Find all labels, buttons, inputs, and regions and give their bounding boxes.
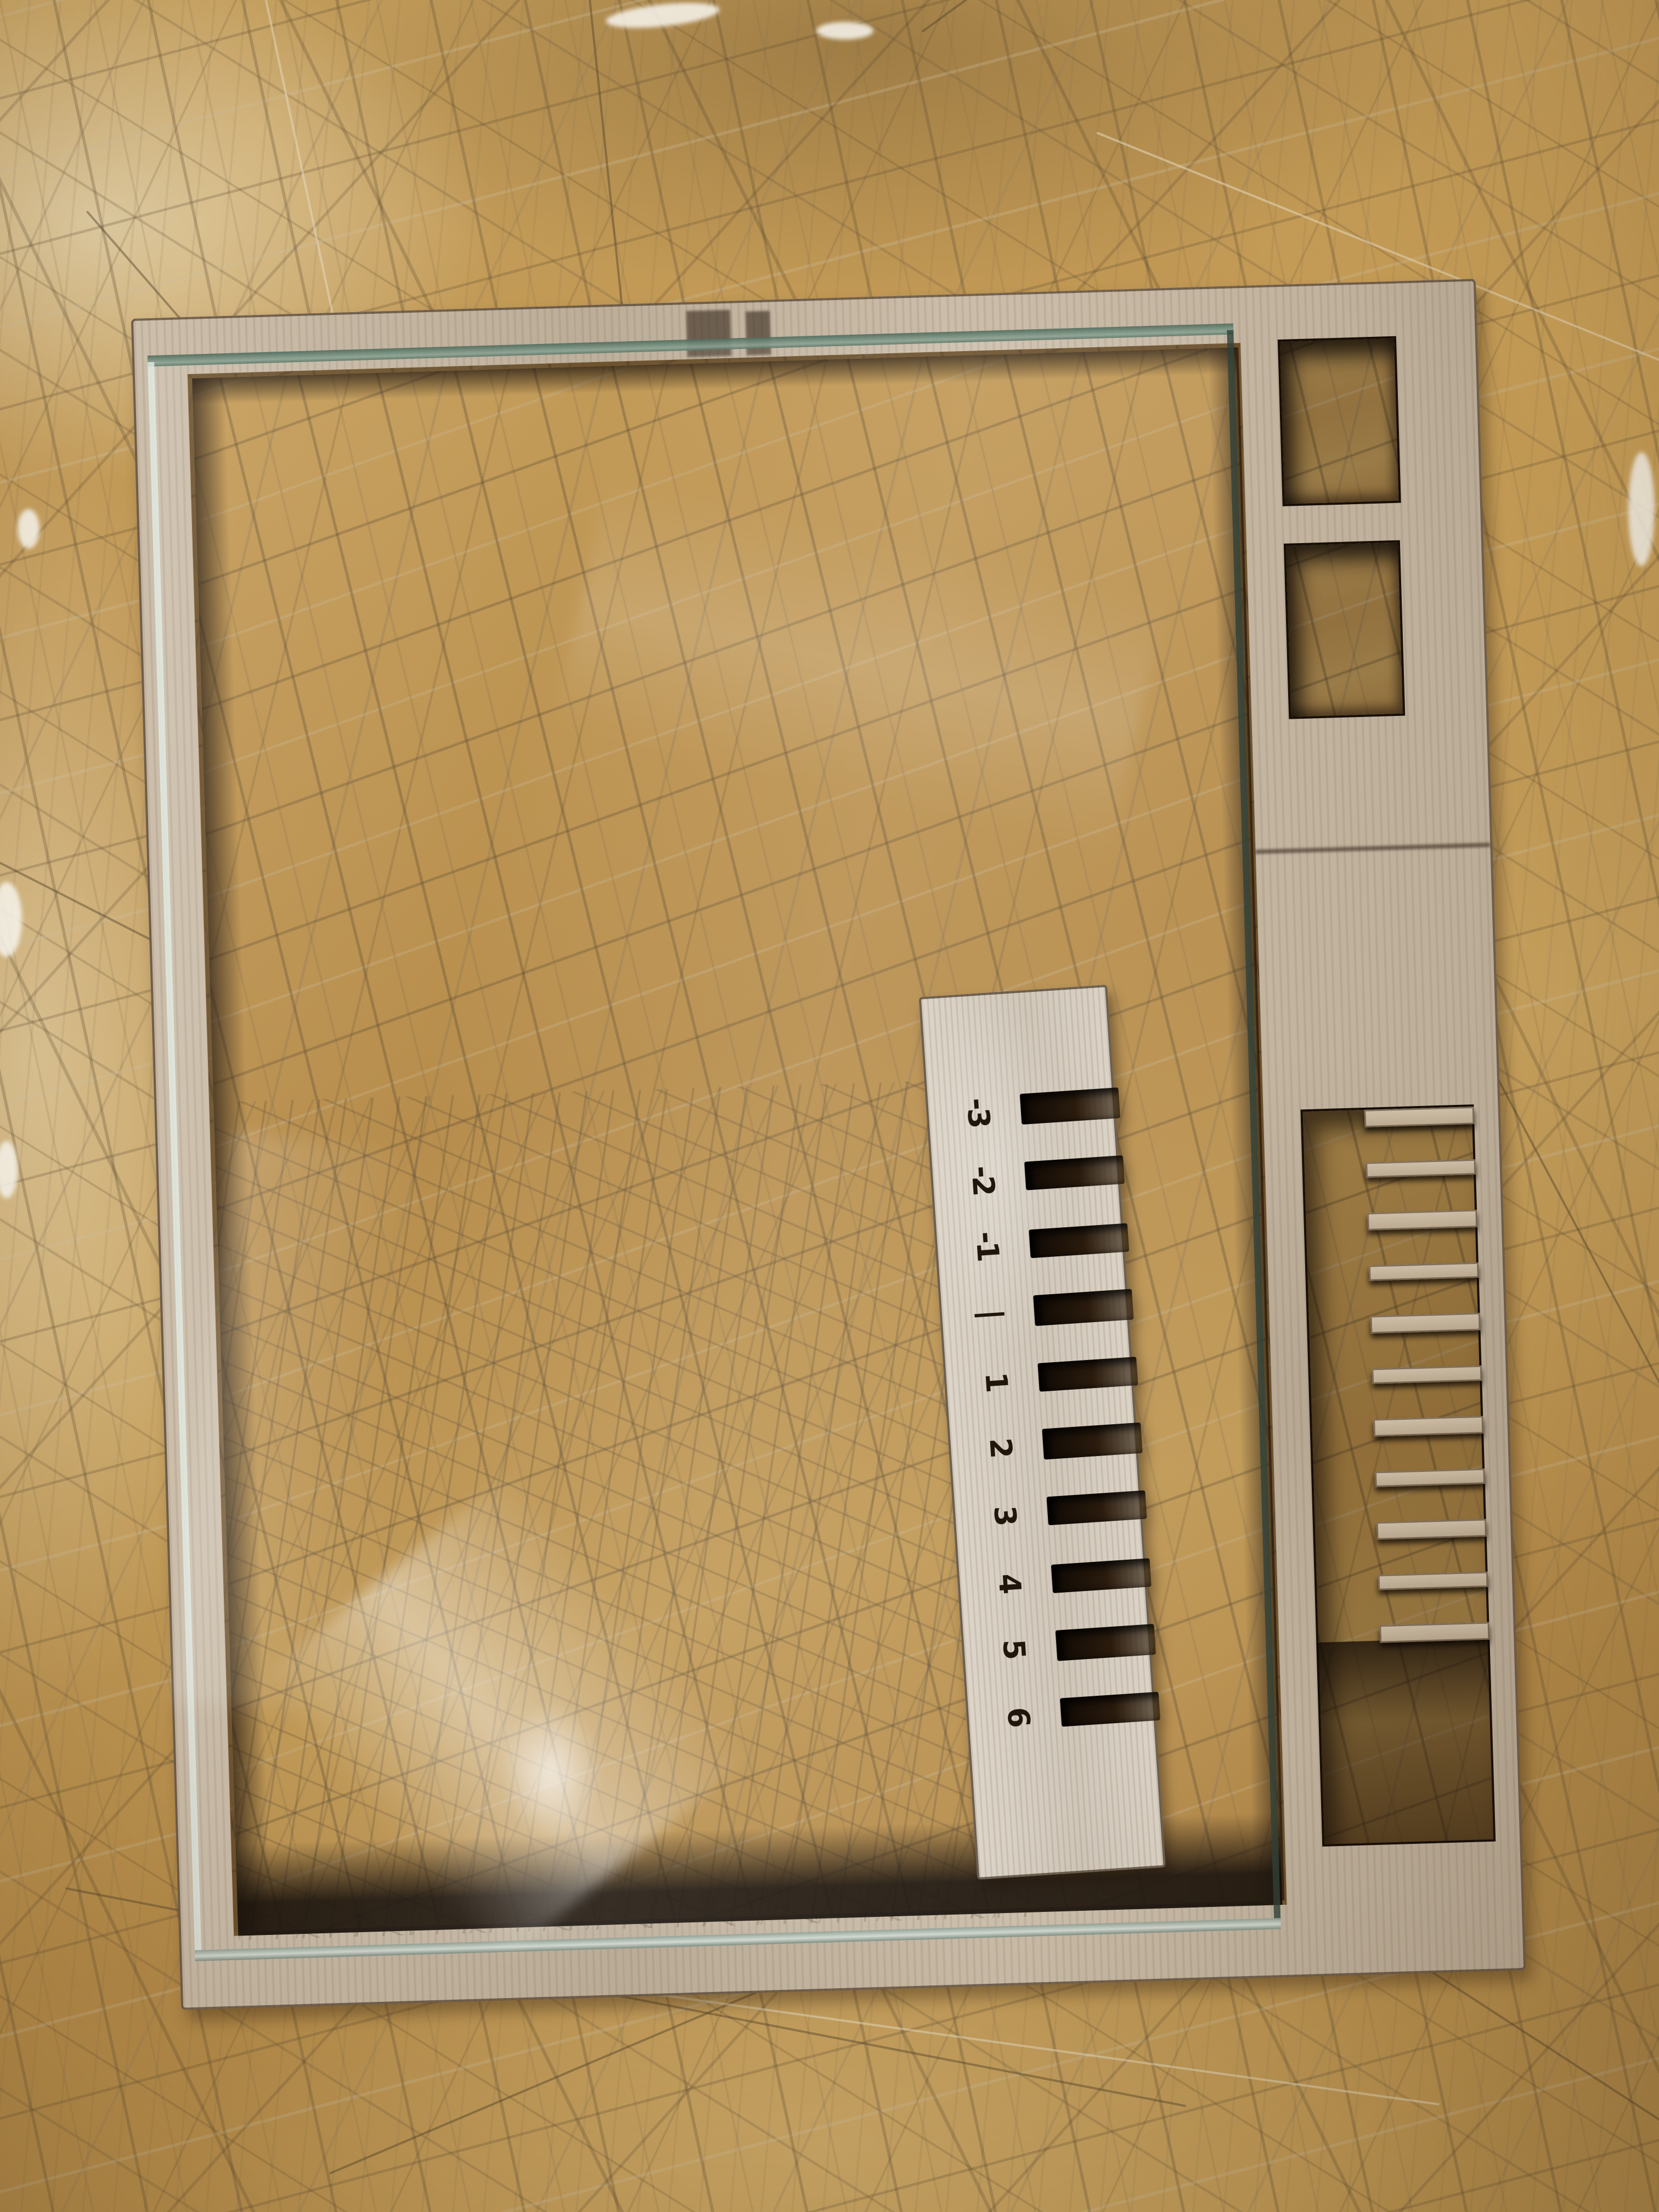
glass-reflection	[499, 1699, 605, 1842]
gauge-slot	[1042, 1423, 1142, 1459]
gauge-label: 1	[978, 1356, 1012, 1407]
frame-comb-tooth	[1367, 1210, 1477, 1229]
gauge-slot	[1047, 1490, 1147, 1526]
frame-comb-cutout-bottom	[1316, 1638, 1496, 1847]
plywood-frame: -3 -2 -1 | 1 2 3 4 5 6	[131, 279, 1526, 2010]
gauge-label: -3	[960, 1087, 994, 1138]
glass-reflection	[552, 475, 1166, 854]
burn-mark	[1255, 843, 1490, 853]
photo-scene: -3 -2 -1 | 1 2 3 4 5 6	[0, 0, 1659, 2212]
gauge-slot	[1056, 1624, 1156, 1660]
frame-cutout-hole-2	[1284, 540, 1405, 719]
paint-fleck	[1628, 452, 1655, 566]
glass-reflection	[171, 1132, 430, 1721]
gauge-label: 2	[983, 1422, 1017, 1472]
glass-edge-bottom	[195, 1917, 1281, 1961]
glass-edge-right	[1227, 330, 1280, 1920]
frame-comb-tooth	[1370, 1313, 1481, 1333]
frame-comb-tooth	[1375, 1468, 1485, 1487]
gauge-slot	[1033, 1289, 1133, 1325]
gauge-label: 4	[991, 1558, 1025, 1609]
frame-cutout-hole-1	[1278, 336, 1401, 506]
frame-comb-tooth	[1365, 1158, 1476, 1178]
gauge-label: 6	[1000, 1691, 1034, 1742]
gauge-slot	[1037, 1356, 1138, 1392]
frame-comb-tooth	[1379, 1622, 1489, 1642]
gauge-slot	[1020, 1088, 1120, 1124]
gauge-slot	[1029, 1222, 1129, 1259]
gauge-label: 3	[987, 1490, 1021, 1541]
glass-reflection	[261, 1469, 752, 1966]
frame-comb-tooth	[1378, 1571, 1488, 1590]
frame-comb-tooth	[1373, 1416, 1483, 1436]
frame-comb-tooth	[1369, 1261, 1479, 1281]
gauge-label: -1	[969, 1221, 1003, 1271]
paint-fleck	[18, 509, 39, 549]
frame-comb-tooth	[1372, 1364, 1482, 1384]
gauge-slot	[1024, 1155, 1125, 1191]
gauge-label: -2	[964, 1155, 998, 1205]
gauge-label: 5	[996, 1623, 1030, 1674]
gauge-slot	[1051, 1557, 1152, 1593]
frame-comb-tooth	[1364, 1107, 1475, 1126]
frame-comb-tooth	[1376, 1519, 1487, 1539]
gauge-slot	[1060, 1691, 1160, 1727]
gauge-label: |	[973, 1289, 1007, 1339]
paint-fleck	[816, 22, 873, 39]
